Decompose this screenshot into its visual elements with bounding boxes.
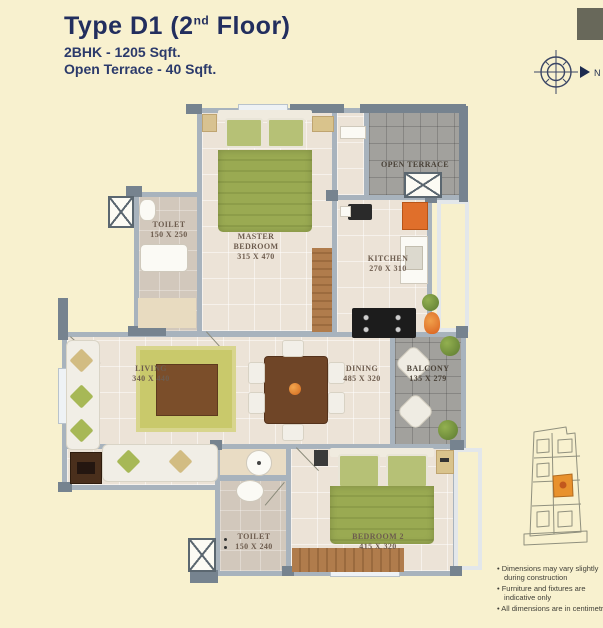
shaft-x-icon [404,172,442,198]
floorplan-page: Type D1 (2nd Floor) 2BHK - 1205 Sqft. Op… [0,0,603,628]
plant [440,336,460,356]
disclaimer-notes: Dimensions may vary slightly during cons… [497,564,603,615]
title-superscript: nd [194,14,210,28]
room-dims: 415 X 320 [336,542,420,552]
room-name: BEDROOM 2 [336,532,420,542]
table-item [440,458,449,462]
area-subtitle: 2BHK - 1205 Sqft. [64,44,291,60]
room-label-toilet-1: TOILET 150 X 250 [138,220,200,240]
compass-north-label: N [594,68,601,78]
wall-segment [186,104,202,114]
wall-segment [450,440,464,450]
room-deck-strip [454,448,482,570]
room-label-balcony: BALCONY 135 X 279 [396,364,460,384]
room-name: TOILET [222,532,286,542]
room-dims: 150 X 250 [138,230,200,240]
room-dims: 270 X 310 [352,264,424,274]
room-dims: 150 X 240 [222,542,286,552]
wall-segment [360,104,466,113]
room-name: TOILET [138,220,200,230]
plant [422,294,439,311]
compass-icon: N [532,44,603,100]
bathtub [140,244,188,272]
room-label-living: LIVING 340 X 440 [116,364,186,384]
room-label-kitchen: KITCHEN 270 X 310 [352,254,424,274]
refrigerator [402,202,428,230]
kitchen-table [348,204,372,220]
room-utility-strip [437,200,469,332]
header: Type D1 (2nd Floor) 2BHK - 1205 Sqft. Op… [64,12,291,77]
dining-chair [282,424,304,441]
foyer-bench [340,126,366,139]
room-name: OPEN TERRACE [372,160,458,170]
tv-screen [77,462,95,474]
room-name: MASTER BEDROOM [228,232,284,252]
dining-chair [282,340,304,357]
room-name: LIVING [116,364,186,374]
wall-segment [58,298,68,340]
room-label-master-bedroom: MASTER BEDROOM 315 X 470 [228,232,284,262]
wall-segment [456,326,468,338]
dining-table [264,356,328,424]
page-title: Type D1 (2nd Floor) [64,12,291,41]
room-label-bedroom-2: BEDROOM 2 415 X 320 [336,532,420,552]
room-name: BALCONY [396,364,460,374]
wardrobe [312,248,332,332]
room-label-toilet-2: TOILET 150 X 240 [222,532,286,552]
bed-pillow [225,118,263,148]
bedside-table [436,450,454,474]
fruit-bowl [289,383,301,395]
wall-segment [459,106,468,202]
bedside-table [202,114,217,132]
plant [438,420,458,440]
dining-chair [328,392,345,414]
room-dims: 315 X 470 [228,252,284,262]
bed-blanket [218,150,312,232]
room-label-dining: DINING 485 X 320 [326,364,398,384]
bedside-table [314,450,328,466]
basin-drain [257,461,261,465]
room-name: DINING [326,364,398,374]
toilet-basin [236,480,264,502]
shaft-x-icon [108,196,134,228]
title-text: Type D1 (2 [64,12,194,40]
note-item: Furniture and fixtures are indicative on… [497,584,603,602]
room-dims: 340 X 440 [116,374,186,384]
shower-mat [138,298,196,328]
bed-pillow [267,118,305,148]
stove [352,308,416,338]
room-label-open-terrace: OPEN TERRACE [372,160,458,170]
dining-chair [248,392,265,414]
wash-basin [246,450,272,476]
tv-unit [70,452,102,484]
room-dims: 135 X 279 [396,374,460,384]
title-text-end: Floor) [209,12,290,40]
wall-segment [326,190,338,201]
key-plan-sketch [506,420,603,565]
terrace-subtitle: Open Terrace - 40 Sqft. [64,61,291,77]
page-corner-decoration [577,8,603,40]
room-dims: 485 X 320 [326,374,398,384]
room-name: KITCHEN [352,254,424,264]
kitchen-stool [340,206,351,217]
bed-pillow [386,454,428,488]
shaft-x-icon [188,538,216,572]
toilet-wc [139,199,156,221]
bench [312,116,334,132]
dining-chair [248,362,265,384]
master-bed [218,110,312,232]
note-item: Dimensions may vary slightly during cons… [497,564,603,582]
note-item: All dimensions are in centimetres [497,604,603,613]
wall-segment [450,566,462,576]
bed-pillow [338,454,380,488]
bedroom2-bed [330,448,434,544]
decor-plant-orange [424,312,440,334]
